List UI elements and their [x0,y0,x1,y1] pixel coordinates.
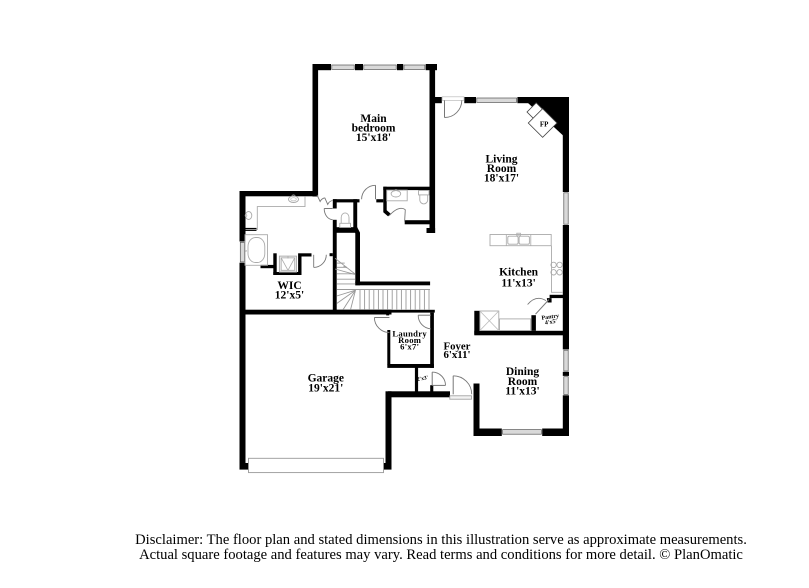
svg-text:DiningRoom11'x13': DiningRoom11'x13' [505,366,540,398]
svg-text:LivingRoom18'x17': LivingRoom18'x17' [484,154,519,185]
svg-text:Actual square footage and feat: Actual square footage and features may v… [139,547,743,563]
svg-text:FP: FP [540,121,549,129]
svg-text:Disclaimer: The floor plan and: Disclaimer: The floor plan and stated di… [135,532,747,548]
svg-text:WIC12'x5': WIC12'x5' [275,280,304,302]
svg-text:Foyer6'x11': Foyer6'x11' [444,341,471,362]
svg-text:Kitchen11'x13': Kitchen11'x13' [499,266,539,289]
svg-text:Garage19'x21': Garage19'x21' [308,373,344,395]
